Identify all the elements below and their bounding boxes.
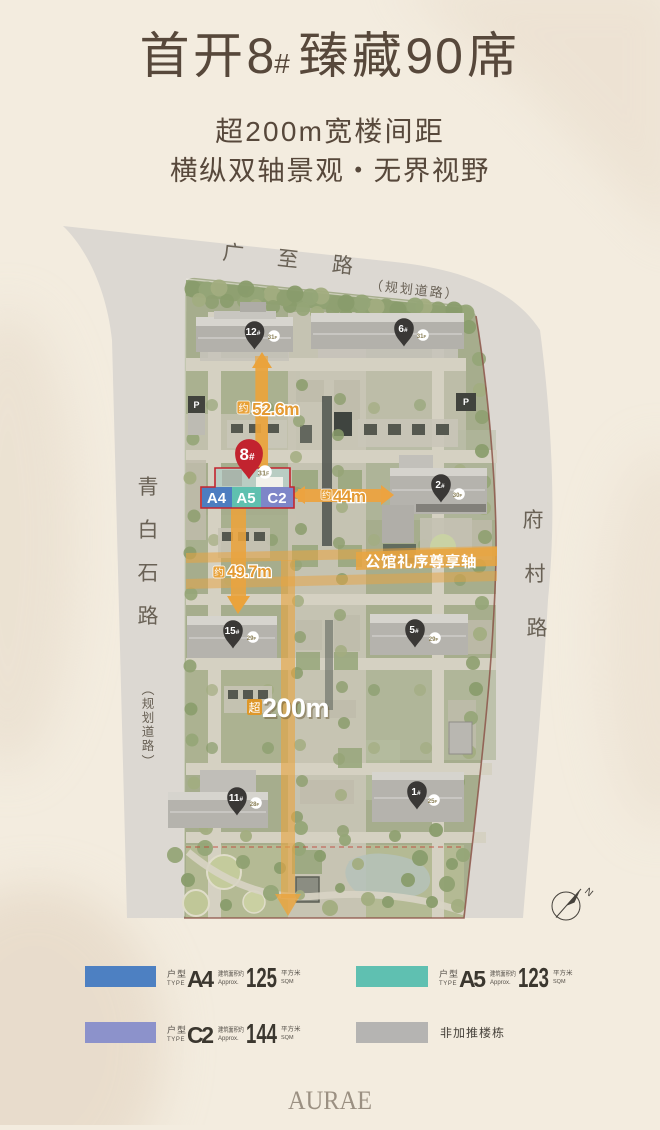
svg-text:A4: A4	[187, 966, 214, 992]
svg-text:约: 约	[239, 400, 249, 415]
svg-text:府: 府	[523, 504, 544, 534]
svg-text:TYPE: TYPE	[167, 1037, 185, 1043]
svg-text:建筑面积约: 建筑面积约	[490, 969, 516, 979]
svg-text:路: 路	[138, 600, 159, 630]
svg-text:200m: 200m	[262, 693, 329, 723]
svg-text:A5: A5	[236, 490, 255, 507]
svg-text:石: 石	[138, 557, 159, 587]
svg-text:SQM: SQM	[553, 979, 566, 985]
svg-text:超: 超	[248, 699, 260, 716]
svg-text:白: 白	[138, 514, 159, 544]
svg-text:路: 路	[527, 612, 548, 642]
svg-text:P: P	[463, 397, 469, 407]
svg-text:A4: A4	[207, 490, 227, 507]
svg-text:首开8#臻藏90席: 首开8#臻藏90席	[139, 16, 520, 88]
svg-text:约: 约	[214, 565, 224, 579]
svg-text:125: 125	[246, 962, 277, 993]
svg-text:144: 144	[246, 1018, 277, 1049]
svg-text:SQM: SQM	[281, 979, 294, 985]
svg-text:C2: C2	[267, 490, 286, 507]
svg-text:公馆礼序尊享轴: 公馆礼序尊享轴	[365, 550, 477, 572]
svg-text:123: 123	[518, 962, 549, 993]
svg-text:平方米: 平方米	[281, 967, 301, 977]
svg-text:超200m宽楼间距: 超200m宽楼间距	[215, 110, 445, 150]
svg-text:Approx.: Approx.	[490, 980, 511, 986]
svg-text:A5: A5	[459, 966, 486, 992]
svg-text:建筑面积约: 建筑面积约	[218, 969, 244, 979]
svg-text:TYPE: TYPE	[439, 981, 457, 987]
svg-text:户型: 户型	[167, 1023, 187, 1036]
svg-text:︶: ︶	[141, 751, 154, 770]
svg-text:P: P	[193, 400, 199, 410]
svg-text:Approx.: Approx.	[218, 980, 239, 986]
svg-text:52.6m: 52.6m	[252, 399, 299, 419]
svg-text:户型: 户型	[167, 967, 187, 980]
svg-text:村: 村	[525, 558, 546, 588]
svg-text:Approx.: Approx.	[218, 1036, 239, 1042]
svg-text:横纵双轴景观·无界视野: 横纵双轴景观·无界视野	[170, 148, 490, 188]
svg-text:49.7m: 49.7m	[227, 563, 271, 581]
svg-text:约: 约	[322, 488, 331, 501]
svg-text:SQM: SQM	[281, 1035, 294, 1041]
svg-text:C2: C2	[187, 1022, 214, 1048]
svg-text:户型: 户型	[439, 967, 459, 980]
svg-text:TYPE: TYPE	[167, 981, 185, 987]
svg-text:非加推楼栋: 非加推楼栋	[440, 1024, 505, 1041]
svg-text:青: 青	[138, 471, 159, 501]
svg-text:建筑面积约: 建筑面积约	[218, 1025, 244, 1035]
svg-text:44m: 44m	[333, 487, 366, 506]
svg-text:AURAE: AURAE	[288, 1086, 372, 1115]
svg-text:平方米: 平方米	[281, 1023, 301, 1033]
svg-text:平方米: 平方米	[553, 967, 573, 977]
